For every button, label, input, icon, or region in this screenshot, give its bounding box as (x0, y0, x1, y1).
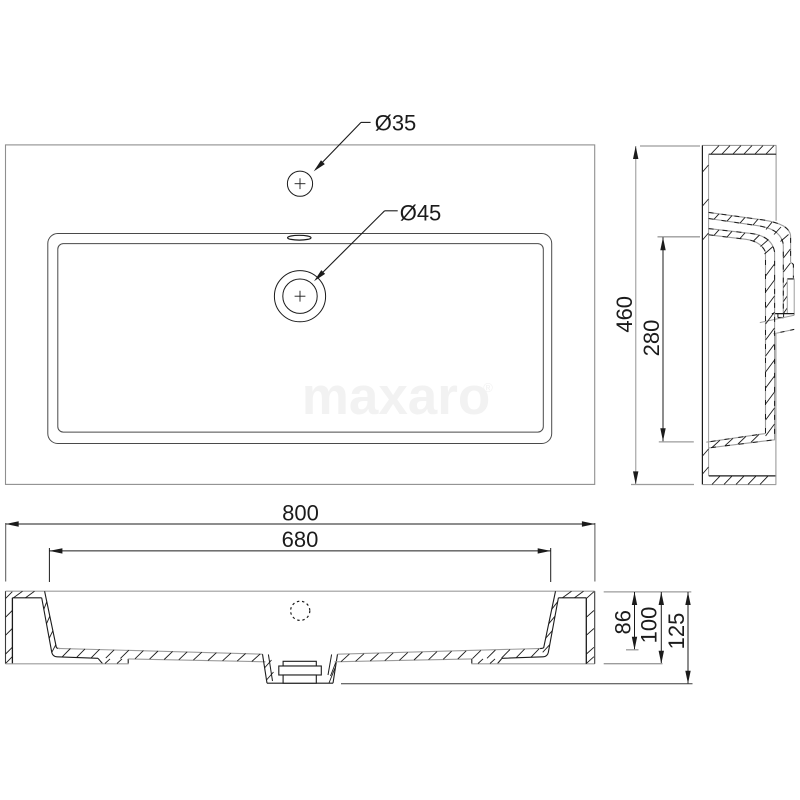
svg-text:86: 86 (611, 610, 636, 634)
svg-text:280: 280 (639, 320, 664, 357)
svg-text:125: 125 (664, 613, 689, 650)
svg-text:®: ® (483, 380, 493, 395)
svg-text:460: 460 (612, 296, 637, 333)
svg-text:100: 100 (637, 607, 662, 644)
svg-text:Ø45: Ø45 (400, 200, 442, 225)
svg-text:800: 800 (282, 500, 319, 525)
svg-text:680: 680 (282, 527, 319, 552)
svg-text:maxaro: maxaro (302, 367, 491, 426)
svg-text:Ø35: Ø35 (375, 110, 417, 135)
